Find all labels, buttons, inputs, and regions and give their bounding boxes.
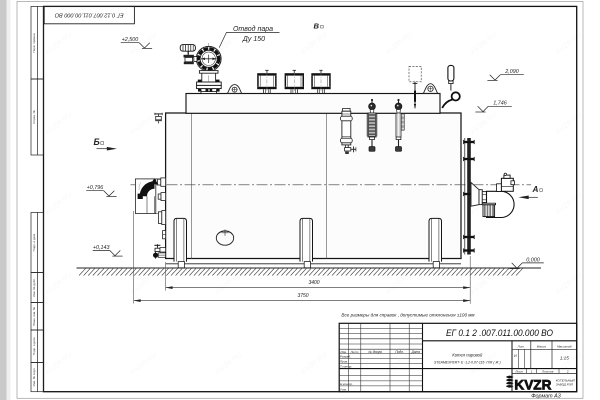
svg-text:+2,500: +2,500 [122, 37, 139, 43]
svg-text:В: В [314, 21, 320, 30]
svg-text:Лист: Лист [514, 370, 523, 374]
svg-text:Отвод пара: Отвод пара [233, 25, 273, 33]
svg-text:STEAMEXPERT- Е -1,2-0,07-115-: STEAMEXPERT- Е -1,2-0,07-115- ГЛК ( Ж ) [434, 360, 501, 364]
svg-text:0,000: 0,000 [526, 257, 540, 263]
svg-text:Справ. №: Справ. № [32, 109, 36, 123]
svg-text:Разраб.: Разраб. [340, 355, 351, 359]
svg-text:Инв. № подл.: Инв. № подл. [32, 367, 36, 386]
svg-text:+0,143: +0,143 [93, 245, 110, 251]
svg-text:Взам. инв. №: Взам. инв. № [32, 306, 36, 325]
svg-text:Подп.: Подп. [395, 350, 404, 354]
svg-text:1: 1 [531, 370, 533, 374]
svg-text:+0,796: +0,796 [87, 185, 104, 191]
svg-text:Лист: Лист [350, 350, 359, 354]
svg-text:Дата: Дата [411, 350, 421, 354]
svg-text:Листов: Листов [541, 370, 554, 374]
svg-text:Подп. и дата: Подп. и дата [32, 233, 36, 251]
svg-text:Утв.: Утв. [340, 387, 347, 391]
svg-text:Ду 150: Ду 150 [242, 36, 265, 43]
svg-text:ЕГ 0.12.007.011.00.000 ВО: ЕГ 0.12.007.011.00.000 ВО [54, 11, 123, 17]
svg-text:Инв. № дубл.: Инв. № дубл. [32, 278, 36, 297]
svg-text:Масштаб: Масштаб [557, 344, 572, 348]
svg-text:ЕГ 0.1 2 .007.011.00.000 ВО: ЕГ 0.1 2 .007.011.00.000 ВО [446, 327, 554, 338]
svg-text:Лит.: Лит. [517, 344, 525, 348]
svg-text:Котел паровой: Котел паровой [452, 352, 483, 357]
svg-text:Перв. примен.: Перв. примен. [32, 33, 36, 53]
svg-text:KVZR: KVZR [514, 376, 551, 392]
svg-text:№ докум.: № докум. [368, 350, 382, 354]
svg-text:Пров.: Пров. [340, 360, 348, 364]
svg-text:И: И [514, 354, 517, 358]
svg-text:1,746: 1,746 [493, 101, 507, 107]
svg-text:3400: 3400 [308, 280, 319, 286]
svg-text:Формат А3: Формат А3 [531, 393, 561, 399]
svg-text:2,090: 2,090 [504, 69, 519, 75]
svg-text:Т.контр.: Т.контр. [340, 365, 352, 369]
svg-text:1:15: 1:15 [560, 355, 569, 360]
svg-text:Н.контр.: Н.контр. [340, 382, 353, 386]
svg-text:ЗАВОД РЭП: ЗАВОД РЭП [556, 382, 574, 386]
svg-text:А: А [532, 185, 539, 194]
svg-text:Изм.: Изм. [340, 350, 347, 354]
svg-text:Масса: Масса [537, 344, 546, 348]
svg-text:3750: 3750 [297, 293, 308, 299]
svg-text:2: 2 [566, 370, 569, 374]
svg-text:Б: Б [94, 137, 100, 147]
svg-text:Подп. и дата: Подп. и дата [32, 337, 36, 355]
svg-text:Все размеры для справок , допу: Все размеры для справок , допустимые отк… [341, 313, 475, 318]
